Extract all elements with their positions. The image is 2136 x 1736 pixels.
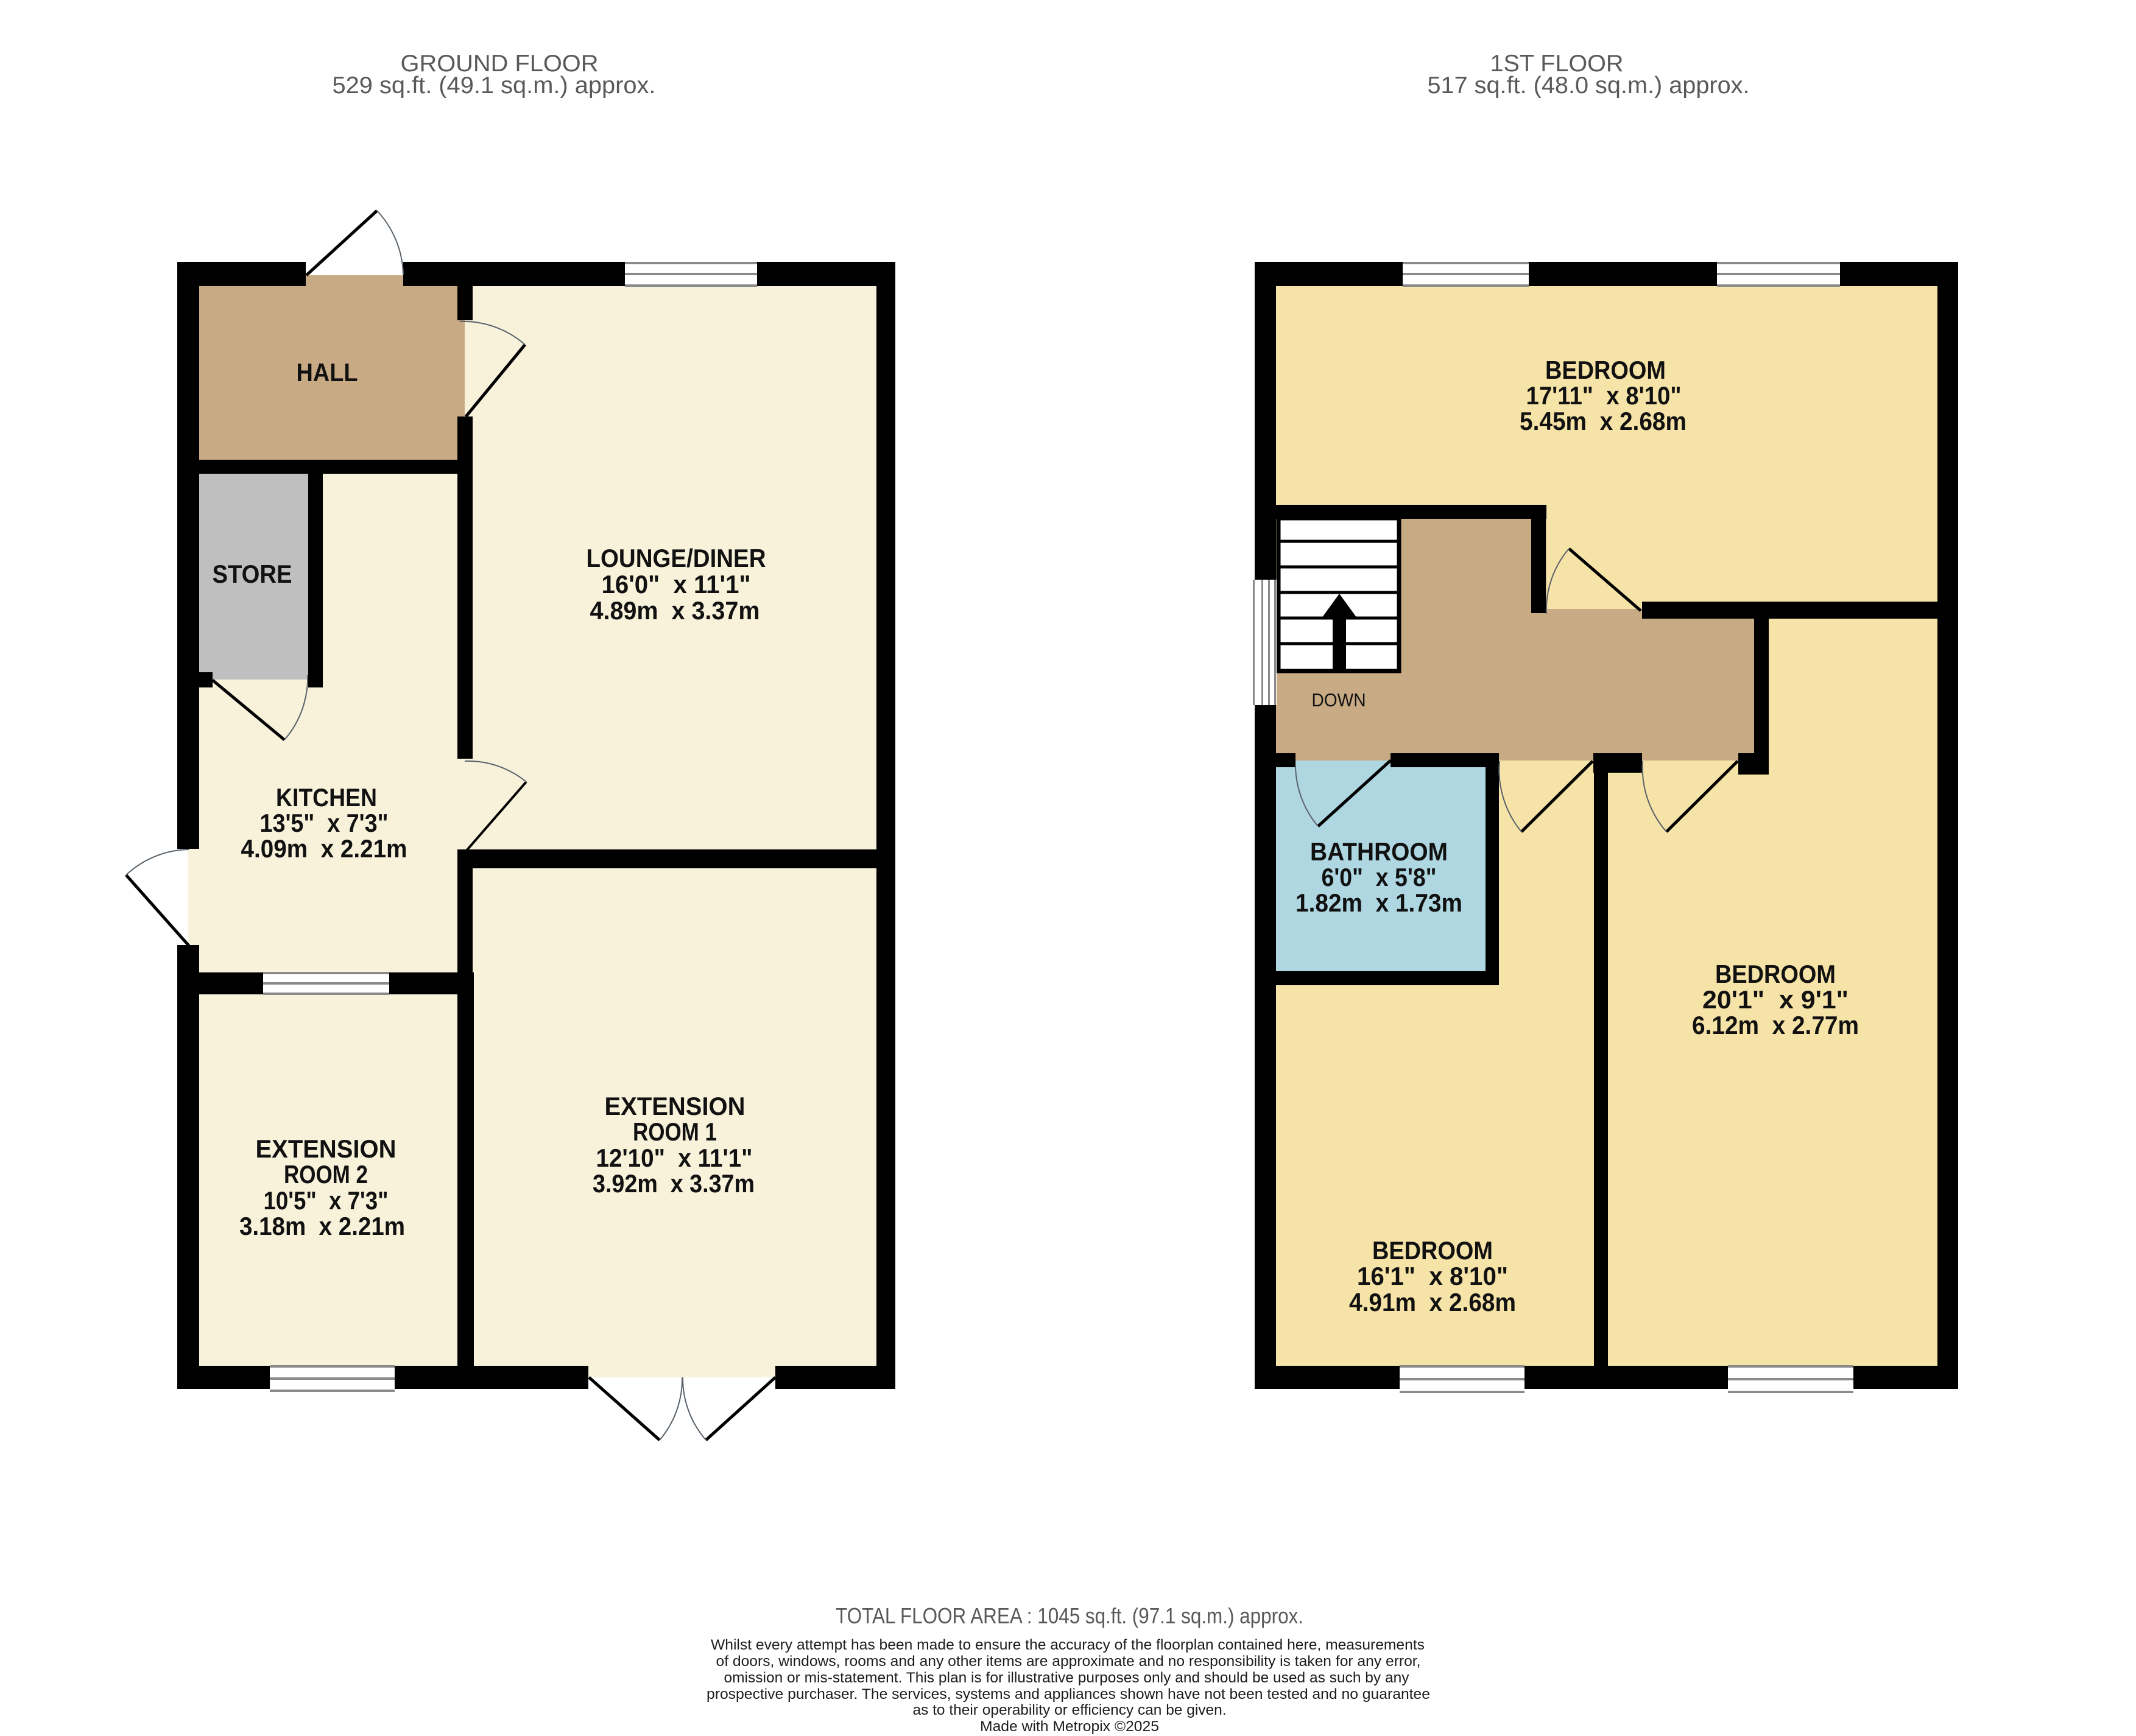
svg-text:ROOM 2: ROOM 2 xyxy=(284,1160,368,1189)
svg-text:of doors, windows, rooms and a: of doors, windows, rooms and any other i… xyxy=(716,1653,1421,1670)
svg-text:20'1" x 9'1": 20'1" x 9'1" xyxy=(1702,985,1849,1014)
svg-text:LOUNGE/DINER: LOUNGE/DINER xyxy=(587,544,766,572)
svg-text:EXTENSION: EXTENSION xyxy=(256,1134,397,1163)
svg-text:17'11" x 8'10": 17'11" x 8'10" xyxy=(1526,381,1682,410)
svg-text:3.92m x 3.37m: 3.92m x 3.37m xyxy=(593,1169,755,1198)
svg-text:3.18m x 2.21m: 3.18m x 2.21m xyxy=(239,1212,405,1240)
svg-text:BEDROOM: BEDROOM xyxy=(1372,1236,1493,1265)
svg-text:4.09m x 2.21m: 4.09m x 2.21m xyxy=(241,834,407,863)
svg-text:EXTENSION: EXTENSION xyxy=(605,1092,745,1120)
svg-text:12'10" x 11'1": 12'10" x 11'1" xyxy=(596,1144,753,1172)
svg-text:10'5" x 7'3": 10'5" x 7'3" xyxy=(264,1186,389,1215)
svg-text:BEDROOM: BEDROOM xyxy=(1715,960,1836,988)
svg-text:STORE: STORE xyxy=(213,560,292,588)
svg-text:4.89m x 3.37m: 4.89m x 3.37m xyxy=(590,596,760,625)
svg-text:ROOM 1: ROOM 1 xyxy=(633,1117,717,1146)
svg-text:HALL: HALL xyxy=(297,358,358,387)
svg-text:omission or mis-statement. Thi: omission or mis-statement. This plan is … xyxy=(724,1670,1409,1686)
svg-text:DOWN: DOWN xyxy=(1312,689,1366,711)
svg-text:as to their operability or eff: as to their operability or efficiency ca… xyxy=(913,1702,1227,1718)
svg-text:6.12m x 2.77m: 6.12m x 2.77m xyxy=(1692,1011,1859,1039)
svg-text:Whilst every attempt has been: Whilst every attempt has been made to en… xyxy=(711,1637,1425,1653)
svg-text:BEDROOM: BEDROOM xyxy=(1545,356,1666,384)
svg-text:BATHROOM: BATHROOM xyxy=(1310,837,1448,866)
svg-text:Made with Metropix ©2025: Made with Metropix ©2025 xyxy=(980,1718,1159,1735)
svg-text:529 sq.ft. (49.1 sq.m.) approx: 529 sq.ft. (49.1 sq.m.) approx. xyxy=(333,72,656,99)
svg-text:KITCHEN: KITCHEN xyxy=(276,783,377,812)
svg-text:6'0" x 5'8": 6'0" x 5'8" xyxy=(1322,863,1437,891)
svg-text:16'0" x 11'1": 16'0" x 11'1" xyxy=(602,570,751,599)
svg-text:5.45m x 2.68m: 5.45m x 2.68m xyxy=(1520,407,1687,435)
svg-text:TOTAL FLOOR AREA : 1045 sq.ft.: TOTAL FLOOR AREA : 1045 sq.ft. (97.1 sq.… xyxy=(836,1603,1303,1628)
svg-text:prospective purchaser. The ser: prospective purchaser. The services, sys… xyxy=(707,1686,1430,1703)
svg-text:517 sq.ft. (48.0 sq.m.) approx: 517 sq.ft. (48.0 sq.m.) approx. xyxy=(1428,72,1750,99)
svg-text:16'1" x 8'10": 16'1" x 8'10" xyxy=(1357,1262,1508,1290)
svg-text:1.82m x 1.73m: 1.82m x 1.73m xyxy=(1295,888,1462,917)
svg-text:4.91m x 2.68m: 4.91m x 2.68m xyxy=(1349,1288,1516,1316)
svg-text:13'5" x 7'3": 13'5" x 7'3" xyxy=(260,809,389,837)
